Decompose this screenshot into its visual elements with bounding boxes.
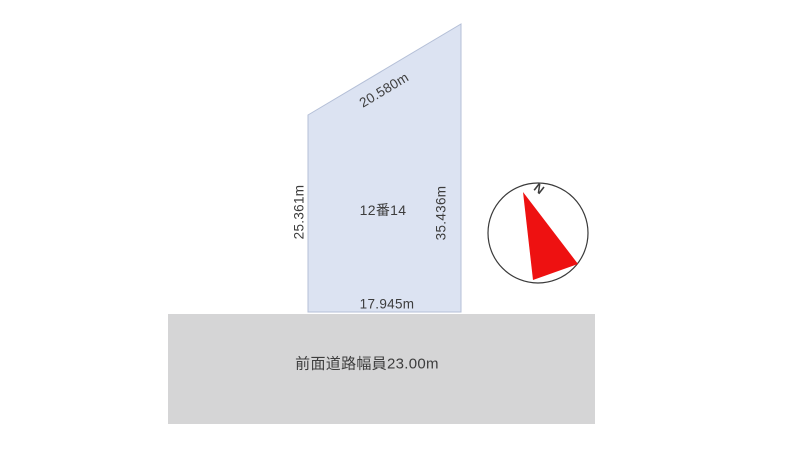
lot-number-label: 12番14 xyxy=(360,200,407,220)
dimension-left: 25.361m xyxy=(292,185,307,240)
dimension-right: 35.436m xyxy=(434,186,449,241)
parcel-shape xyxy=(308,24,461,312)
dimension-bottom: 17.945m xyxy=(360,297,415,312)
diagram-canvas xyxy=(0,0,800,450)
road-width-label: 前面道路幅員23.00m xyxy=(295,353,439,374)
land-plot-diagram: 20.580m 25.361m 35.436m 12番14 17.945m 前面… xyxy=(0,0,800,450)
